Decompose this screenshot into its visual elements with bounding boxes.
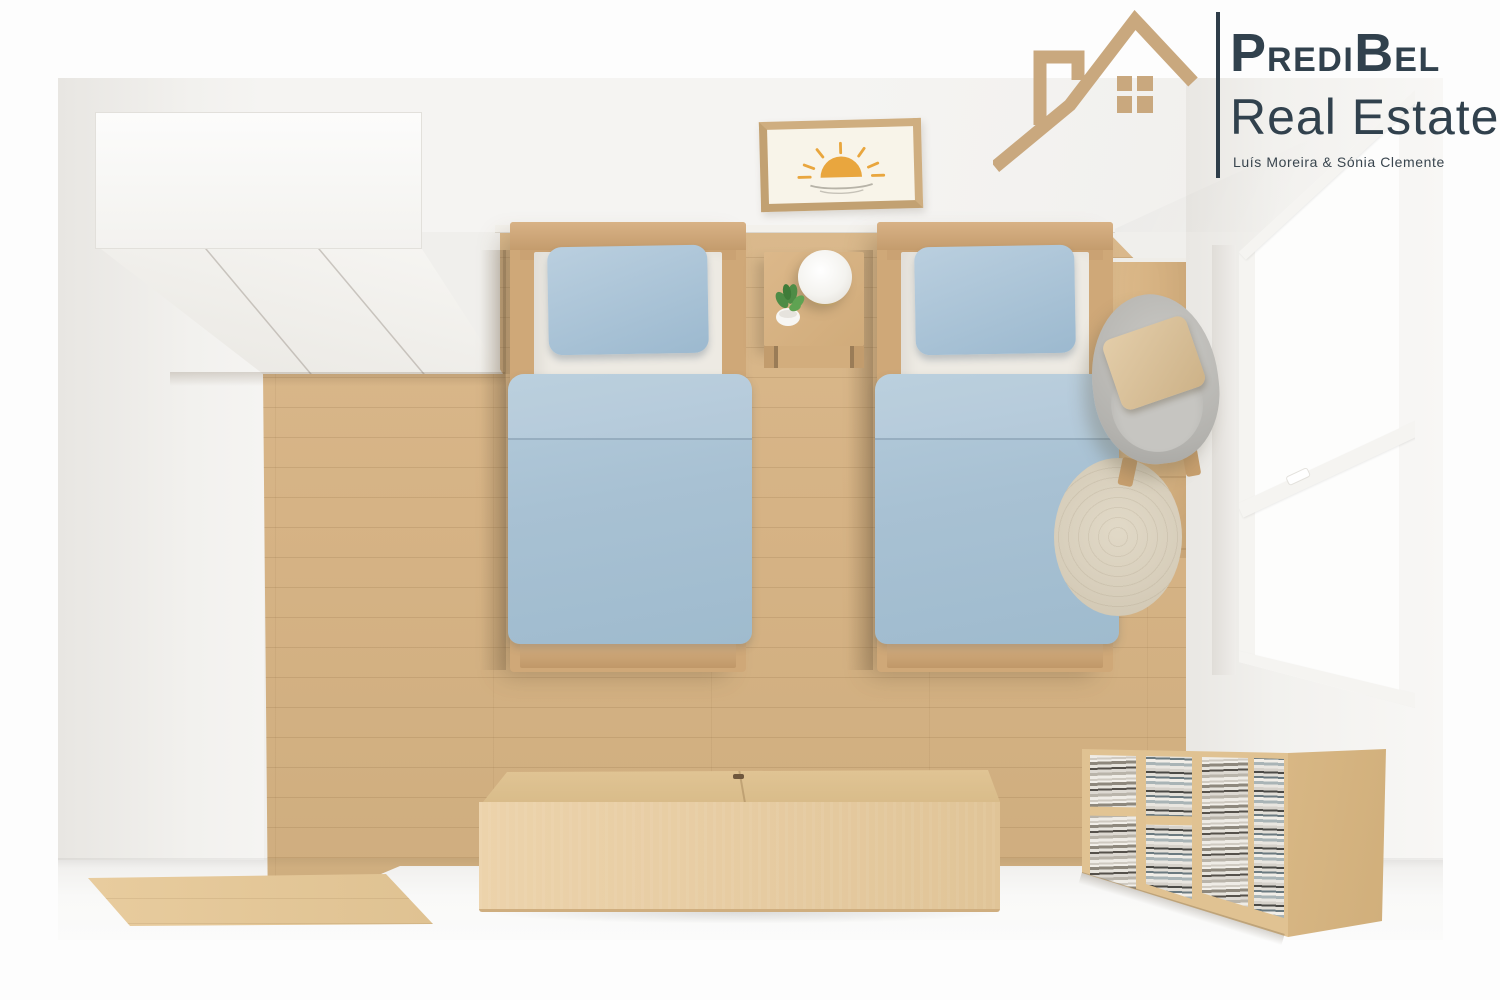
potted-plant [768,280,812,328]
book-stack [1254,758,1284,920]
bay-shelf [1090,807,1136,817]
chair-leg [1117,457,1137,488]
plant-leaves [773,283,807,313]
blue-duvet [508,374,752,644]
book-stack [1202,757,1248,909]
window-mullion [1237,419,1425,517]
bay-shelf [1146,816,1192,826]
twin-bed-right [877,222,1113,672]
brand-wordmark: PrediBel [1230,22,1441,84]
window-handle [1285,467,1311,486]
real-estate-room-render: PrediBel Real Estate Luís Moreira & Sóni… [0,0,1500,1000]
bench-handle [733,774,744,779]
wardrobe-shadow [170,372,505,386]
footboard [887,642,1103,668]
storage-bench-front [479,802,1000,912]
gray-armchair [1092,290,1218,490]
brand-tagline: Luís Moreira & Sónia Clemente [1233,154,1445,170]
blue-pillow [914,245,1076,356]
book-stack [1146,756,1192,901]
duvet-fold [508,374,752,440]
duvet-fold [875,374,1119,440]
twin-bed-left [510,222,746,672]
book-stack [1090,755,1136,889]
roof-line [995,20,1193,167]
window-panes-icon [1117,76,1153,113]
logo-divider [1216,12,1220,178]
footboard [520,642,736,668]
sun-drawing [770,130,912,200]
house-roof-icon [993,10,1207,172]
window-frame-left [1239,250,1255,666]
wave-line [820,190,863,194]
wardrobe-top-face [95,112,422,249]
bench-shadow [482,912,1002,924]
brand-line2: Real Estate [1230,88,1499,146]
storage-bench-top [483,770,1000,802]
wordmark-el: el [1394,41,1440,80]
predibel-logo: PrediBel Real Estate Luís Moreira & Sóni… [985,8,1500,188]
blue-pillow [547,245,709,356]
sun-wall-art [759,118,923,212]
sun-icon [820,156,862,178]
wordmark-b: B [1354,22,1394,84]
chair-body [1082,287,1228,471]
wood-floor-extension [88,874,433,926]
wordmark-p: P [1230,22,1267,84]
nightstand-front [764,346,864,368]
wordmark-redi: redi [1267,41,1354,80]
wave-line [810,184,872,189]
bed-shadow [480,250,506,670]
